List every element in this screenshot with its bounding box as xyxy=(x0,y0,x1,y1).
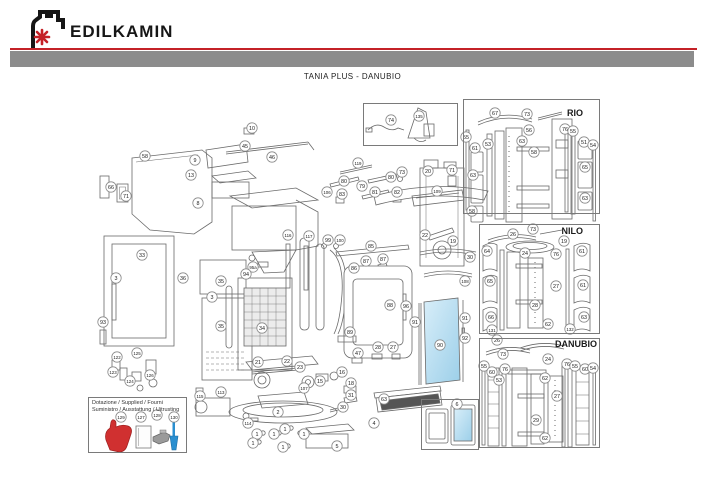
edilkamin-logo-icon xyxy=(26,10,72,52)
part-callout: 99 xyxy=(323,235,333,245)
svg-text:67: 67 xyxy=(492,111,498,117)
svg-text:80: 80 xyxy=(341,179,347,185)
svg-text:27: 27 xyxy=(390,345,396,351)
part-callout: 3 xyxy=(207,292,217,302)
svg-text:13: 13 xyxy=(188,173,194,179)
svg-text:108: 108 xyxy=(461,279,469,284)
svg-text:126: 126 xyxy=(146,373,154,378)
svg-text:91: 91 xyxy=(462,316,468,322)
svg-text:92: 92 xyxy=(462,336,468,342)
part-callout: 106 xyxy=(322,187,332,197)
svg-text:18: 18 xyxy=(348,381,354,387)
svg-text:76: 76 xyxy=(502,367,508,373)
svg-text:93: 93 xyxy=(100,320,106,326)
brush-icon xyxy=(170,420,178,450)
svg-text:58: 58 xyxy=(469,209,475,215)
part-callout: 122 xyxy=(112,352,122,362)
svg-text:53: 53 xyxy=(496,378,502,384)
svg-text:130: 130 xyxy=(170,415,178,420)
svg-text:33: 33 xyxy=(139,253,145,259)
svg-text:131: 131 xyxy=(488,328,496,333)
part-callout: 10 xyxy=(247,123,257,133)
part-callout: 62 xyxy=(540,433,550,443)
part-callout: 5 xyxy=(332,441,342,451)
svg-text:30: 30 xyxy=(467,255,473,261)
svg-text:55: 55 xyxy=(481,364,487,370)
part-callout: 9 xyxy=(190,155,200,165)
svg-text:24: 24 xyxy=(545,357,551,363)
svg-text:71: 71 xyxy=(123,194,129,200)
svg-text:85: 85 xyxy=(368,244,374,250)
part-callout: 58 xyxy=(467,206,477,216)
part-callout: 55 xyxy=(461,132,471,142)
svg-text:19: 19 xyxy=(450,239,456,245)
part-callout: 117 xyxy=(304,231,314,241)
part-callout: 82 xyxy=(392,187,402,197)
svg-text:73: 73 xyxy=(399,170,405,176)
svg-text:124: 124 xyxy=(126,379,134,384)
svg-text:60: 60 xyxy=(489,370,495,376)
part-callout: 29 xyxy=(531,415,541,425)
svg-text:62: 62 xyxy=(542,376,548,382)
part-callout: 128 xyxy=(152,410,162,420)
part-callout: 36 xyxy=(178,273,188,283)
part-callout: 87 xyxy=(361,256,371,266)
part-callout: 119 xyxy=(353,158,363,168)
svg-text:1: 1 xyxy=(282,445,285,451)
part-callout: 46 xyxy=(267,152,277,162)
part-callout: 19 xyxy=(448,236,458,246)
part-callout: 91 xyxy=(460,313,470,323)
part-callout: 20 xyxy=(423,166,433,176)
part-callout: 63 xyxy=(379,394,389,404)
part-callout: 66 xyxy=(106,182,116,192)
svg-text:66: 66 xyxy=(488,315,494,321)
svg-text:36: 36 xyxy=(180,276,186,282)
part-callout: 83 xyxy=(337,189,347,199)
svg-text:66: 66 xyxy=(108,185,114,191)
part-callout: 4 xyxy=(369,418,379,428)
part-callout: 6 xyxy=(452,399,462,409)
svg-text:122: 122 xyxy=(113,355,121,360)
svg-text:83: 83 xyxy=(339,192,345,198)
svg-text:19: 19 xyxy=(561,239,567,245)
svg-text:5: 5 xyxy=(336,444,339,450)
svg-text:65: 65 xyxy=(582,165,588,171)
svg-text:79: 79 xyxy=(359,184,365,190)
svg-text:109: 109 xyxy=(433,189,441,194)
part-callout: 61 xyxy=(470,143,480,153)
part-callout: 65 xyxy=(580,162,590,172)
part-callout: 27 xyxy=(552,391,562,401)
svg-text:58: 58 xyxy=(142,154,148,160)
part-callout: 107 xyxy=(299,383,309,393)
part-callout: 53 xyxy=(483,139,493,149)
svg-text:95a: 95a xyxy=(249,265,257,270)
svg-text:87: 87 xyxy=(363,259,369,265)
part-callout: 73 xyxy=(522,109,532,119)
dotazione-items-art xyxy=(106,420,179,452)
part-callout: 63 xyxy=(579,312,589,322)
part-callout: 87 xyxy=(378,254,388,264)
part-callout: 100 xyxy=(335,235,345,245)
part-callout: 22 xyxy=(282,356,292,366)
part-callout: 47 xyxy=(353,348,363,358)
svg-text:30: 30 xyxy=(340,405,346,411)
svg-text:115: 115 xyxy=(197,394,205,399)
svg-text:58: 58 xyxy=(531,150,537,156)
page: EDILKAMIN TANIA PLUS - DANUBIO xyxy=(0,0,705,498)
svg-text:61: 61 xyxy=(472,146,478,152)
manual-icon xyxy=(136,426,151,448)
svg-text:63: 63 xyxy=(582,196,588,202)
svg-text:9: 9 xyxy=(194,158,197,164)
svg-text:2: 2 xyxy=(277,410,280,416)
part-callout: 16 xyxy=(337,367,347,377)
svg-text:76: 76 xyxy=(564,362,570,368)
part-callout: 1 xyxy=(248,438,258,448)
svg-text:26: 26 xyxy=(494,338,500,344)
part-callout: 58 xyxy=(140,151,150,161)
part-callout: 94 xyxy=(241,269,251,279)
part-callout: 130 xyxy=(169,412,179,422)
part-callout: 67 xyxy=(490,108,500,118)
svg-text:99: 99 xyxy=(325,238,331,244)
svg-text:81: 81 xyxy=(372,190,378,196)
svg-text:76: 76 xyxy=(553,252,559,258)
part-callout: 127 xyxy=(136,412,146,422)
part-callout: 64 xyxy=(482,246,492,256)
svg-text:10: 10 xyxy=(249,126,255,132)
svg-text:23: 23 xyxy=(297,365,303,371)
svg-text:1: 1 xyxy=(273,432,276,438)
svg-text:82: 82 xyxy=(394,190,400,196)
svg-text:35: 35 xyxy=(218,324,224,330)
part-callout: 71 xyxy=(447,165,457,175)
svg-text:53: 53 xyxy=(485,142,491,148)
svg-text:63: 63 xyxy=(581,315,587,321)
svg-text:62: 62 xyxy=(545,322,551,328)
svg-text:64: 64 xyxy=(484,249,490,255)
svg-text:86: 86 xyxy=(351,266,357,272)
svg-text:117: 117 xyxy=(306,234,314,239)
part-callout: 1 xyxy=(278,442,288,452)
part-callout: 30 xyxy=(465,252,475,262)
svg-text:113: 113 xyxy=(218,390,226,395)
part-callout: 124 xyxy=(125,376,135,386)
part-callout: 80 xyxy=(386,172,396,182)
svg-text:132: 132 xyxy=(566,327,574,332)
svg-text:94: 94 xyxy=(243,272,249,278)
part-callout: 88 xyxy=(385,300,395,310)
part-callout: 79 xyxy=(357,181,367,191)
diagram-canvas: 7413510454658913866711198080797371201098… xyxy=(0,0,705,498)
svg-text:89: 89 xyxy=(347,330,353,336)
part-callout: 63 xyxy=(580,193,590,203)
part-callout: 19 xyxy=(559,236,569,246)
svg-text:129: 129 xyxy=(117,415,125,420)
part-callout: 22 xyxy=(420,230,430,240)
part-callout: 55 xyxy=(570,361,580,371)
svg-text:28: 28 xyxy=(375,345,381,351)
part-callout: 66 xyxy=(486,312,496,322)
svg-text:29: 29 xyxy=(533,418,539,424)
svg-text:1: 1 xyxy=(252,441,255,447)
svg-text:60: 60 xyxy=(582,367,588,373)
svg-text:27: 27 xyxy=(553,284,559,290)
part-callout: 1 xyxy=(269,429,279,439)
part-callout: 114 xyxy=(243,418,253,428)
svg-text:4: 4 xyxy=(373,421,376,427)
nilo-parts-art xyxy=(483,230,590,331)
svg-text:21: 21 xyxy=(255,360,261,366)
svg-text:114: 114 xyxy=(245,421,253,426)
svg-text:106: 106 xyxy=(323,190,331,195)
svg-text:1: 1 xyxy=(256,432,259,438)
svg-text:3: 3 xyxy=(115,276,118,282)
part-callout: 34 xyxy=(257,323,267,333)
svg-text:54: 54 xyxy=(590,366,596,372)
svg-text:1: 1 xyxy=(284,427,287,433)
svg-text:63: 63 xyxy=(470,173,476,179)
svg-text:135: 135 xyxy=(415,114,423,119)
svg-text:116: 116 xyxy=(285,233,293,238)
svg-text:16: 16 xyxy=(339,370,345,376)
part-callout: 86 xyxy=(349,263,359,273)
part-callout: 76 xyxy=(500,364,510,374)
part-callout: 131 xyxy=(487,325,497,335)
part-callout: 28 xyxy=(530,300,540,310)
svg-text:55: 55 xyxy=(572,364,578,370)
svg-text:22: 22 xyxy=(284,359,290,365)
part-callout: 109 xyxy=(432,186,442,196)
part-callout: 56 xyxy=(524,125,534,135)
part-callout: 116 xyxy=(283,230,293,240)
part-callout: 18 xyxy=(346,378,356,388)
svg-text:73: 73 xyxy=(500,352,506,358)
svg-text:63: 63 xyxy=(519,139,525,145)
svg-text:22: 22 xyxy=(422,233,428,239)
part-callout: 115 xyxy=(195,391,205,401)
part-callout: 23 xyxy=(295,362,305,372)
part-callout: 21 xyxy=(253,357,263,367)
part-callout: 71 xyxy=(121,191,131,201)
svg-text:73: 73 xyxy=(530,227,536,233)
svg-text:61: 61 xyxy=(579,249,585,255)
svg-text:91: 91 xyxy=(412,320,418,326)
svg-text:55: 55 xyxy=(463,135,469,141)
logo-asterisk-icon xyxy=(35,30,49,44)
svg-text:20: 20 xyxy=(425,169,431,175)
part-callout: 58 xyxy=(529,147,539,157)
svg-text:46: 46 xyxy=(269,155,275,161)
part-callout: 76 xyxy=(551,249,561,259)
part-callout: 85 xyxy=(366,241,376,251)
svg-text:76: 76 xyxy=(562,127,568,133)
part-callout: 74 xyxy=(386,115,396,125)
part-callout: 3 xyxy=(111,273,121,283)
part-callout: 65 xyxy=(485,276,495,286)
part-callout: 90 xyxy=(435,340,445,350)
part-callout: 8 xyxy=(193,198,203,208)
svg-text:125: 125 xyxy=(133,351,141,356)
svg-text:15: 15 xyxy=(317,379,323,385)
svg-text:8: 8 xyxy=(197,201,200,207)
part-callout: 13 xyxy=(186,170,196,180)
part-callout: 54 xyxy=(588,140,598,150)
part-callout: 92 xyxy=(460,333,470,343)
svg-text:34: 34 xyxy=(259,326,265,332)
part-callout: 26 xyxy=(508,229,518,239)
part-callout: 54 xyxy=(588,363,598,373)
scraper-icon xyxy=(153,430,170,444)
part-callout: 73 xyxy=(498,349,508,359)
svg-text:3: 3 xyxy=(211,295,214,301)
svg-text:100: 100 xyxy=(336,238,344,243)
part-callout: 62 xyxy=(540,373,550,383)
svg-text:35: 35 xyxy=(218,279,224,285)
part-callout: 126 xyxy=(145,370,155,380)
part-callout: 62 xyxy=(543,319,553,329)
part-callout: 135 xyxy=(414,111,424,121)
svg-text:107: 107 xyxy=(300,386,308,391)
svg-text:65: 65 xyxy=(487,279,493,285)
part-callout: 1 xyxy=(280,424,290,434)
part-callout: 63 xyxy=(517,136,527,146)
part-callout: 129 xyxy=(116,412,126,422)
svg-text:74: 74 xyxy=(388,118,394,124)
svg-text:73: 73 xyxy=(524,112,530,118)
part-callout: 53 xyxy=(494,375,504,385)
part-callout: 91 xyxy=(410,317,420,327)
part-callout: 123 xyxy=(108,367,118,377)
svg-text:96: 96 xyxy=(403,304,409,310)
svg-text:88: 88 xyxy=(387,303,393,309)
part-callout: 45 xyxy=(240,141,250,151)
part-callout: 28 xyxy=(373,342,383,352)
part-callout: 80 xyxy=(339,176,349,186)
svg-text:6: 6 xyxy=(456,402,459,408)
part-callout: 33 xyxy=(137,250,147,260)
svg-text:26: 26 xyxy=(510,232,516,238)
part-callout: 24 xyxy=(543,354,553,364)
svg-text:87: 87 xyxy=(380,257,386,263)
svg-text:80: 80 xyxy=(388,175,394,181)
svg-text:119: 119 xyxy=(355,161,363,166)
svg-text:45: 45 xyxy=(242,144,248,150)
glove-icon xyxy=(106,420,132,452)
part-callout: 108 xyxy=(460,276,470,286)
part-callout: 2 xyxy=(273,407,283,417)
part-callout: 61 xyxy=(578,280,588,290)
part-callout: 15 xyxy=(315,376,325,386)
part-callout: 30 xyxy=(338,402,348,412)
part-callout: 55 xyxy=(568,126,578,136)
svg-text:31: 31 xyxy=(348,393,354,399)
part-callout: 24 xyxy=(520,248,530,258)
svg-text:128: 128 xyxy=(153,413,161,418)
part-callout: 81 xyxy=(370,187,380,197)
part-callout: 89 xyxy=(345,327,355,337)
svg-text:61: 61 xyxy=(580,283,586,289)
svg-text:47: 47 xyxy=(355,351,361,357)
part-callout: 63 xyxy=(468,170,478,180)
svg-text:123: 123 xyxy=(109,370,117,375)
part-callout: 1 xyxy=(299,429,309,439)
part-callout: 125 xyxy=(132,348,142,358)
part-callout: 35 xyxy=(216,321,226,331)
part-callout: 96 xyxy=(401,301,411,311)
part-callout: 26 xyxy=(492,335,502,345)
svg-text:54: 54 xyxy=(590,143,596,149)
svg-text:27: 27 xyxy=(554,394,560,400)
part-callout: 73 xyxy=(528,224,538,234)
svg-text:71: 71 xyxy=(449,168,455,174)
part-callout: 73 xyxy=(397,167,407,177)
part-callout: 61 xyxy=(577,246,587,256)
svg-text:1: 1 xyxy=(303,432,306,438)
svg-text:90: 90 xyxy=(437,343,443,349)
part-callout: 113 xyxy=(216,387,226,397)
svg-text:63: 63 xyxy=(381,397,387,403)
svg-text:55: 55 xyxy=(570,129,576,135)
svg-text:127: 127 xyxy=(137,415,145,420)
part-callout: 31 xyxy=(346,390,356,400)
danubio-parts-art xyxy=(482,343,596,447)
svg-text:28: 28 xyxy=(532,303,538,309)
svg-text:24: 24 xyxy=(522,251,528,257)
part-callout: 35 xyxy=(216,276,226,286)
svg-text:62: 62 xyxy=(542,436,548,442)
part-callout: 27 xyxy=(551,281,561,291)
part-callout: 93 xyxy=(98,317,108,327)
part-callout: 27 xyxy=(388,342,398,352)
svg-text:56: 56 xyxy=(526,128,532,134)
part-callout: 132 xyxy=(565,324,575,334)
exploded-parts-art xyxy=(100,108,488,448)
svg-text:51: 51 xyxy=(581,140,587,146)
